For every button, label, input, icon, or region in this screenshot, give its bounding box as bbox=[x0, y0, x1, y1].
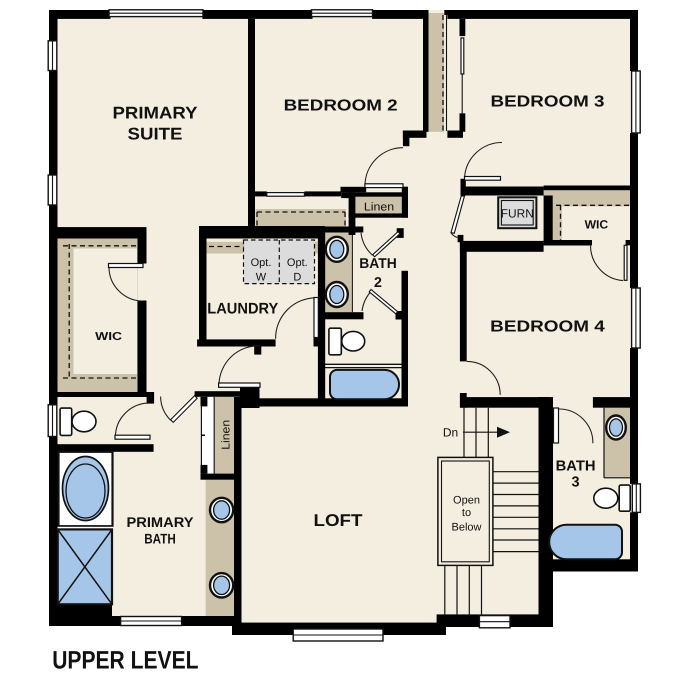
svg-text:PRIMARY: PRIMARY bbox=[113, 104, 199, 123]
svg-text:UPPER LEVEL: UPPER LEVEL bbox=[52, 646, 198, 674]
svg-text:2: 2 bbox=[374, 275, 382, 291]
svg-text:BATH: BATH bbox=[556, 458, 596, 474]
svg-text:Dn: Dn bbox=[443, 426, 458, 440]
svg-text:Open: Open bbox=[453, 495, 480, 507]
svg-text:3: 3 bbox=[572, 475, 580, 491]
svg-text:to: to bbox=[462, 507, 471, 519]
svg-text:Below: Below bbox=[452, 522, 482, 534]
svg-text:Linen: Linen bbox=[220, 420, 232, 450]
svg-text:Linen: Linen bbox=[364, 201, 394, 213]
svg-text:FURN: FURN bbox=[501, 207, 534, 221]
svg-text:BEDROOM 3: BEDROOM 3 bbox=[491, 93, 605, 110]
svg-text:LAUNDRY: LAUNDRY bbox=[207, 301, 279, 318]
svg-text:LOFT: LOFT bbox=[314, 511, 364, 530]
svg-text:PRIMARY: PRIMARY bbox=[127, 514, 195, 530]
svg-text:BEDROOM 4: BEDROOM 4 bbox=[490, 319, 605, 336]
svg-text:BEDROOM 2: BEDROOM 2 bbox=[284, 98, 398, 115]
svg-text:WIC: WIC bbox=[95, 331, 122, 343]
svg-text:W: W bbox=[256, 271, 267, 283]
svg-text:BATH: BATH bbox=[359, 256, 397, 272]
svg-text:SUITE: SUITE bbox=[128, 125, 183, 144]
svg-text:Opt.: Opt. bbox=[287, 257, 308, 269]
svg-text:BATH: BATH bbox=[144, 531, 176, 547]
svg-text:D: D bbox=[293, 271, 301, 283]
svg-text:Opt.: Opt. bbox=[251, 257, 272, 269]
svg-text:WIC: WIC bbox=[585, 218, 609, 232]
